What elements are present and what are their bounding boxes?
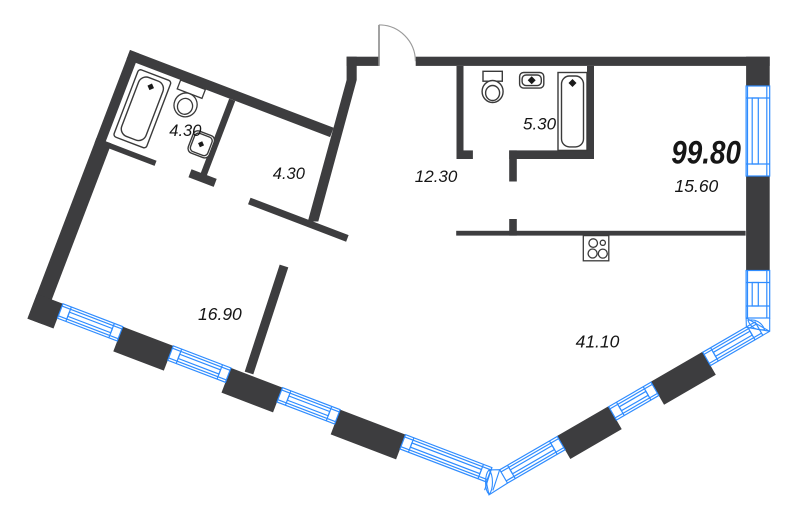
svg-text:99.80: 99.80 xyxy=(671,136,741,171)
svg-text:4.30: 4.30 xyxy=(169,122,202,140)
svg-text:5.30: 5.30 xyxy=(523,115,557,134)
svg-text:4.30: 4.30 xyxy=(273,165,306,183)
svg-text:15.60: 15.60 xyxy=(675,176,719,196)
svg-text:12.30: 12.30 xyxy=(415,167,458,186)
svg-text:41.10: 41.10 xyxy=(576,331,620,351)
svg-text:16.90: 16.90 xyxy=(198,304,242,324)
